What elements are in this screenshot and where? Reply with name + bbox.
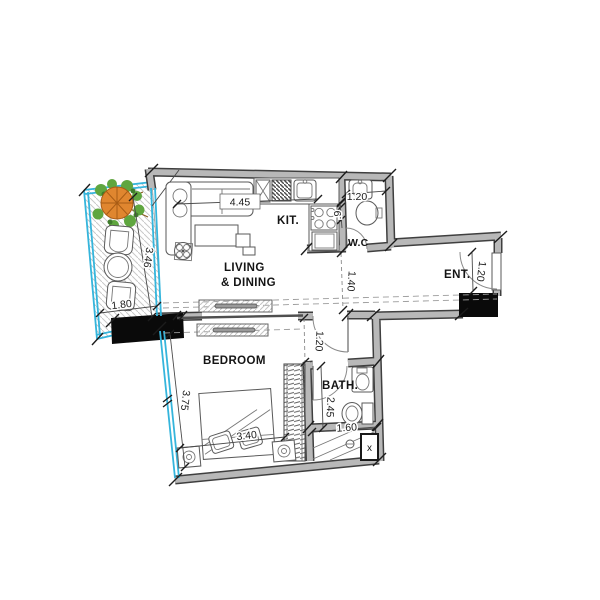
service-shaft: x: [361, 434, 378, 460]
dim-bath-length: 2.45: [323, 397, 336, 418]
label-living-line2: & DINING: [221, 277, 276, 289]
kitchen-sink: [294, 180, 316, 201]
balcony-chair-top: [104, 225, 134, 255]
column-entrance: [459, 293, 498, 317]
coffee-table: [195, 225, 255, 255]
balcony-table: [104, 253, 132, 281]
bedroom-window: [160, 331, 179, 478]
column-balcony: [111, 313, 184, 344]
dim-living-width: 4.45: [230, 197, 251, 209]
floor-plan-page: x 4.45 1.20 .9 1.40 1.20 3.46 1.80 1.20 …: [0, 0, 600, 600]
sliding-door: [173, 300, 303, 336]
dim-bath-width: 1.60: [336, 421, 357, 434]
dim-bedroom-door-width: 1.20: [312, 331, 325, 352]
label-entrance: ENT.: [444, 269, 471, 281]
dim-ent-width: 1.20: [474, 260, 488, 282]
dim-wc-depth: .9: [332, 210, 344, 219]
nightstand-left: [177, 446, 201, 468]
dim-bedroom-length: 3.75: [178, 390, 192, 412]
living-plant: [174, 242, 192, 260]
floor-plan-drawing: x 4.45 1.20 .9 1.40 1.20 3.46 1.80 1.20 …: [0, 0, 600, 600]
label-kitchen: KIT.: [277, 215, 299, 227]
label-bath: BATH.: [322, 380, 358, 392]
label-living-line1: LIVING: [224, 262, 265, 274]
shaft-mark: x: [367, 443, 372, 454]
dim-hall-width: 1.40: [344, 271, 357, 292]
label-wc: W.C: [348, 237, 369, 249]
kitchen-fridge: [312, 232, 337, 250]
dim-balcony-width: 1.80: [111, 298, 133, 312]
bed: [199, 389, 275, 460]
dim-bed-width: 3.40: [236, 429, 258, 443]
kitchen-grill: [272, 180, 291, 201]
nightstand-right: [272, 440, 296, 462]
wc-toilet: [356, 201, 382, 225]
dim-wc-width: 1.20: [347, 191, 368, 203]
label-bedroom: BEDROOM: [203, 355, 266, 367]
